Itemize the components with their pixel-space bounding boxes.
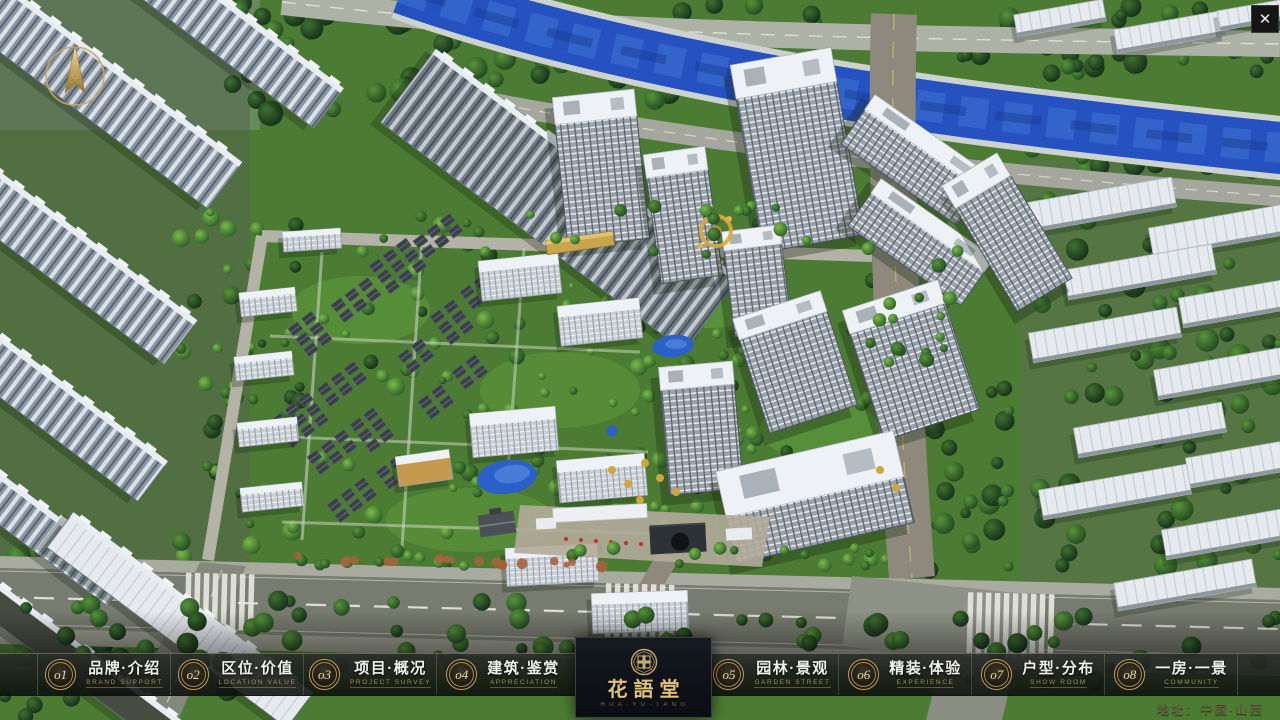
nav-label-zh: 户型·分布 <box>1022 661 1095 678</box>
nav-item-garden[interactable]: o5 园林·景观GARDEN STREET <box>706 654 838 695</box>
brand-name: 花語堂 <box>602 679 686 699</box>
nav-label-en: GARDEN STREET <box>754 679 830 688</box>
nav-label-en: APPRECIATION <box>490 679 557 688</box>
nav-label-en: BRAND SUPPORT <box>86 679 163 688</box>
nav-item-floorplan[interactable]: o7 户型·分布SHOW ROOM <box>971 654 1104 695</box>
nav-item-location[interactable]: o2 区位·价值LOCATION VALUE <box>170 654 303 695</box>
nav-label-zh: 园林·景观 <box>756 661 829 678</box>
nav-badge-03: o3 <box>309 659 340 690</box>
nav-label-en: PROJECT SURVEY <box>350 679 431 688</box>
nav-label-zh: 一房·一景 <box>1155 661 1228 678</box>
nav-badge-04: o4 <box>446 659 477 690</box>
nav-badge-01: o1 <box>45 659 76 690</box>
nav-badge-06: o6 <box>848 659 879 690</box>
nav-item-interior[interactable]: o6 精装·体验EXPERIENCE <box>838 654 971 695</box>
nav-label-zh: 建筑·鉴赏 <box>487 661 560 678</box>
project-address: 地址：中国·山西 <box>1156 699 1264 718</box>
nav-badge-08: o8 <box>1114 659 1145 690</box>
nav-label-en: SHOW ROOM <box>1030 679 1087 688</box>
nav-label-zh: 项目·概况 <box>354 661 427 678</box>
master-plan-app: ✕ o1 品牌·介绍BRAND SUPPORT o2 区位·价值LOCATION… <box>0 0 1280 720</box>
navbar-left-cap <box>0 654 38 695</box>
nav-label-zh: 精装·体验 <box>889 661 962 678</box>
nav-item-project[interactable]: o3 项目·概况PROJECT SURVEY <box>303 654 436 695</box>
nav-label-zh: 区位·价值 <box>221 661 294 678</box>
nav-label-en: COMMUNITY <box>1164 679 1218 688</box>
brand-logo-panel[interactable]: 花語堂 H U A · Y U · T A N G <box>575 637 712 718</box>
nav-badge-02: o2 <box>178 659 209 690</box>
nav-label-zh: 品牌·介绍 <box>88 661 161 678</box>
master-plan-viewport[interactable] <box>0 0 1280 720</box>
nav-label-en: LOCATION VALUE <box>219 679 297 688</box>
close-button[interactable]: ✕ <box>1251 5 1279 33</box>
nav-badge-07: o7 <box>981 659 1012 690</box>
nav-label-en: EXPERIENCE <box>897 679 955 688</box>
brand-seal-icon <box>630 648 658 676</box>
nav-item-architecture[interactable]: o4 建筑·鉴赏APPRECIATION <box>436 654 569 695</box>
nav-item-views[interactable]: o8 一房·一景COMMUNITY <box>1104 654 1237 695</box>
nav-badge-05: o5 <box>713 659 744 690</box>
brand-tagline: H U A · Y U · T A N G <box>601 702 687 708</box>
navbar-right-cap <box>1237 654 1280 695</box>
nav-item-brand[interactable]: o1 品牌·介绍BRAND SUPPORT <box>38 654 170 695</box>
close-icon: ✕ <box>1259 10 1272 28</box>
